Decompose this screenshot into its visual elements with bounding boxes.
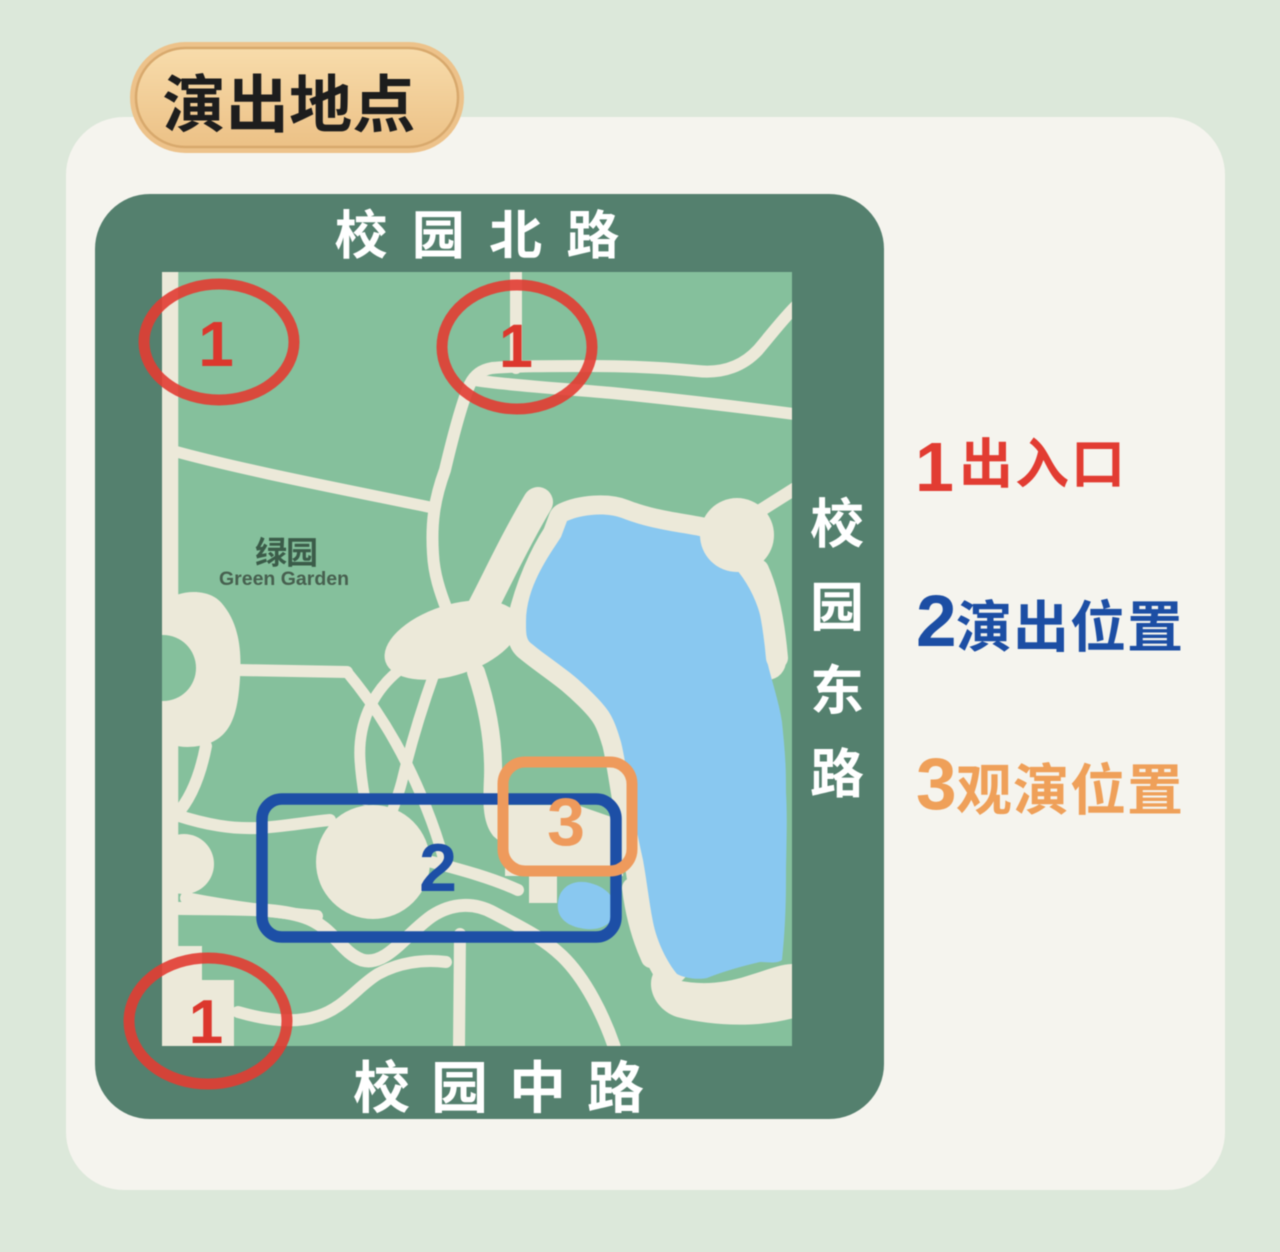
svg-text:Green Garden: Green Garden [219, 568, 349, 590]
svg-text:1: 1 [189, 988, 223, 1057]
svg-text:1: 1 [915, 428, 954, 506]
svg-text:2: 2 [916, 581, 957, 662]
svg-text:3: 3 [916, 744, 957, 825]
svg-text:2: 2 [419, 830, 457, 906]
svg-text:1: 1 [499, 312, 533, 380]
svg-text:1: 1 [198, 308, 234, 380]
svg-text:3: 3 [547, 784, 585, 860]
